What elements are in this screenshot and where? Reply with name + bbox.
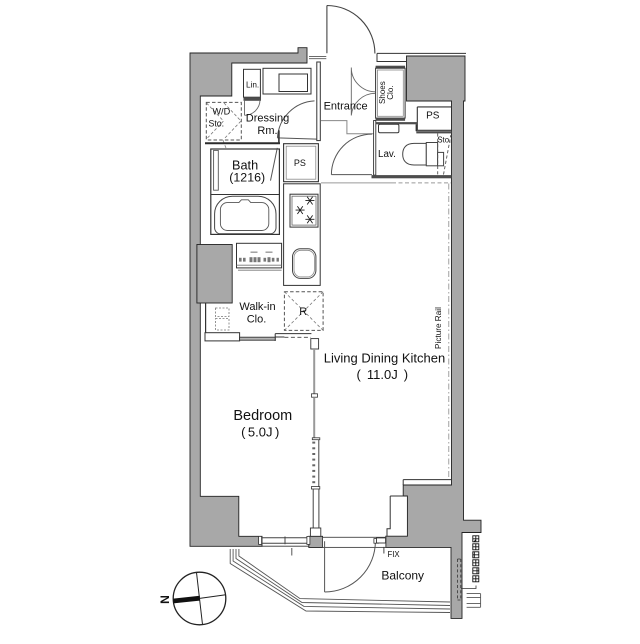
svg-text:Clo.: Clo. <box>386 85 395 99</box>
svg-text:Sto.: Sto. <box>208 119 224 129</box>
svg-text:PS: PS <box>294 158 306 168</box>
svg-text:Rm.: Rm. <box>257 125 277 137</box>
svg-text:Lin.: Lin. <box>246 81 259 90</box>
svg-text:Bedroom: Bedroom <box>233 408 292 424</box>
svg-text:N: N <box>158 595 172 604</box>
svg-text:(1216): (1216) <box>229 171 265 185</box>
svg-text:W/D: W/D <box>212 106 230 116</box>
svg-text:Balcony: Balcony <box>381 568 424 582</box>
svg-text:Entrance: Entrance <box>324 101 368 113</box>
svg-text:Walk-in: Walk-in <box>239 301 275 313</box>
svg-text:Clo.: Clo. <box>247 313 267 325</box>
svg-text:FIX: FIX <box>388 550 401 559</box>
svg-text:Sto.: Sto. <box>437 136 451 145</box>
svg-text:PS: PS <box>426 111 440 122</box>
svg-text:Lav.: Lav. <box>378 149 396 160</box>
svg-text:Picture Rail: Picture Rail <box>434 307 443 349</box>
svg-text:R: R <box>299 306 307 318</box>
svg-text:Dressing: Dressing <box>246 112 289 124</box>
svg-text:Living Dining Kitchen: Living Dining Kitchen <box>324 350 445 365</box>
